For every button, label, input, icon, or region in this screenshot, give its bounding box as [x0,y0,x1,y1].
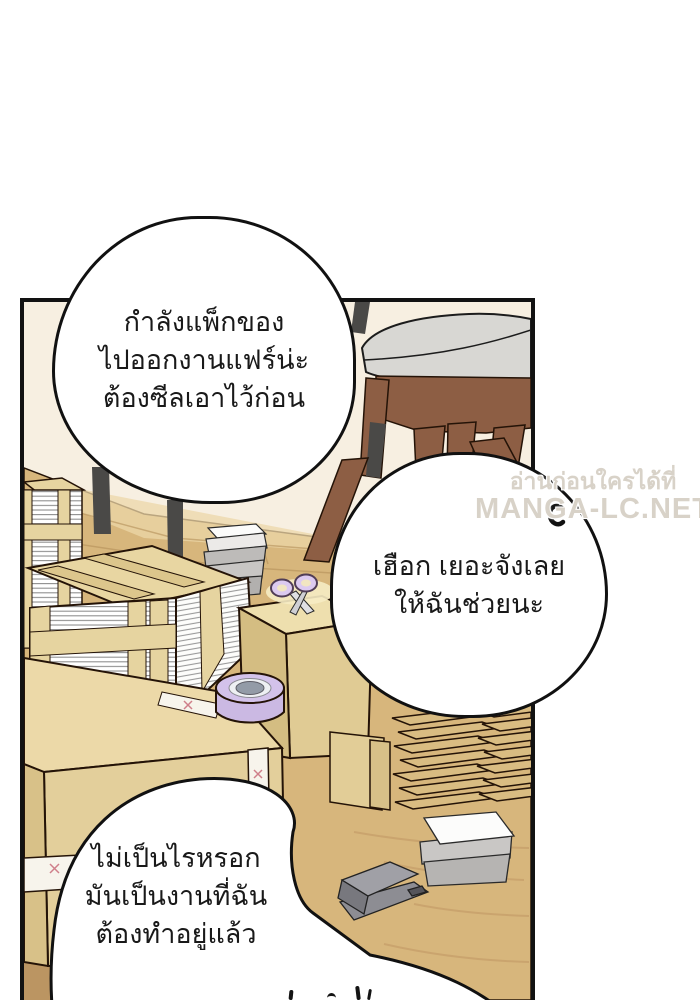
speech-bubble-packing: กำลังแพ็กของ ไปออกงานแฟร์น่ะ ต้องซีลเอาไ… [52,216,356,504]
speech-line: เฮือก เยอะจังเลย [373,547,565,585]
speech-line: กำลังแพ็กของ [99,303,309,341]
speech-line: ไม่เป็นไรหรอก [56,839,296,877]
speech-line: ไปออกงานแฟร์น่ะ [99,341,309,379]
speech-text: เฮือก เยอะจังเลย ให้ฉันช่วยนะ [373,547,565,623]
speech-line: ให้ฉันช่วยนะ [373,585,565,623]
speech-text: กำลังแพ็กของ ไปออกงานแฟร์น่ะ ต้องซีลเอาไ… [99,303,309,417]
chair-bg-leg-1 [92,467,111,534]
speech-line: มันเป็นงานที่ฉัน [56,877,296,915]
watermark: อ่านก่อนใครได้ที่ MANGA-LC.NET [462,468,700,525]
speech-line: ต้องซีลเอาไว้ก่อน [99,379,309,417]
packing-tape-roll [216,673,284,723]
watermark-site-name: MANGA-LC.NET [462,494,700,525]
watermark-thai-line: อ่านก่อนใครได้ที่ [462,468,700,494]
chair-bg-leg-2 [167,500,183,558]
cutoff-text-fragment [327,993,336,1000]
speech-line: ต้องทำอยู่แล้ว [56,915,296,953]
comic-page: กำลังแพ็กของ ไปออกงานแฟร์น่ะ ต้องซีลเอาไ… [0,0,700,1000]
speech-text: ไม่เป็นไรหรอก มันเป็นงานที่ฉัน ต้องทำอยู… [56,839,296,953]
